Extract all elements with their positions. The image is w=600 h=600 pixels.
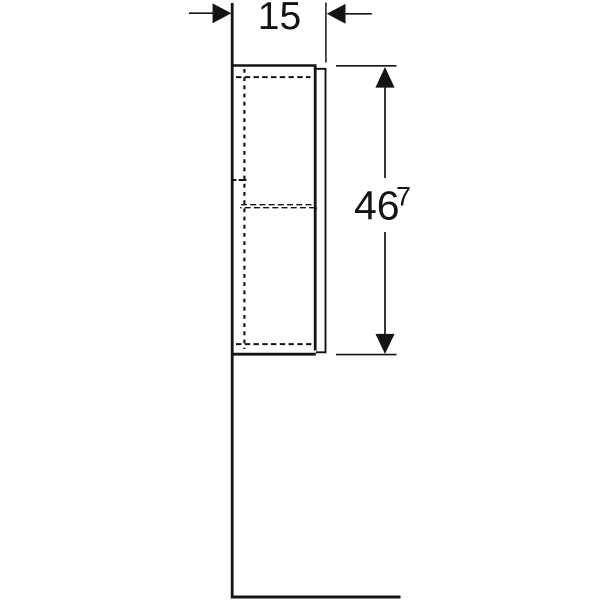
svg-text:7: 7 — [396, 182, 411, 212]
svg-text:46: 46 — [354, 183, 400, 229]
svg-text:15: 15 — [258, 0, 301, 38]
